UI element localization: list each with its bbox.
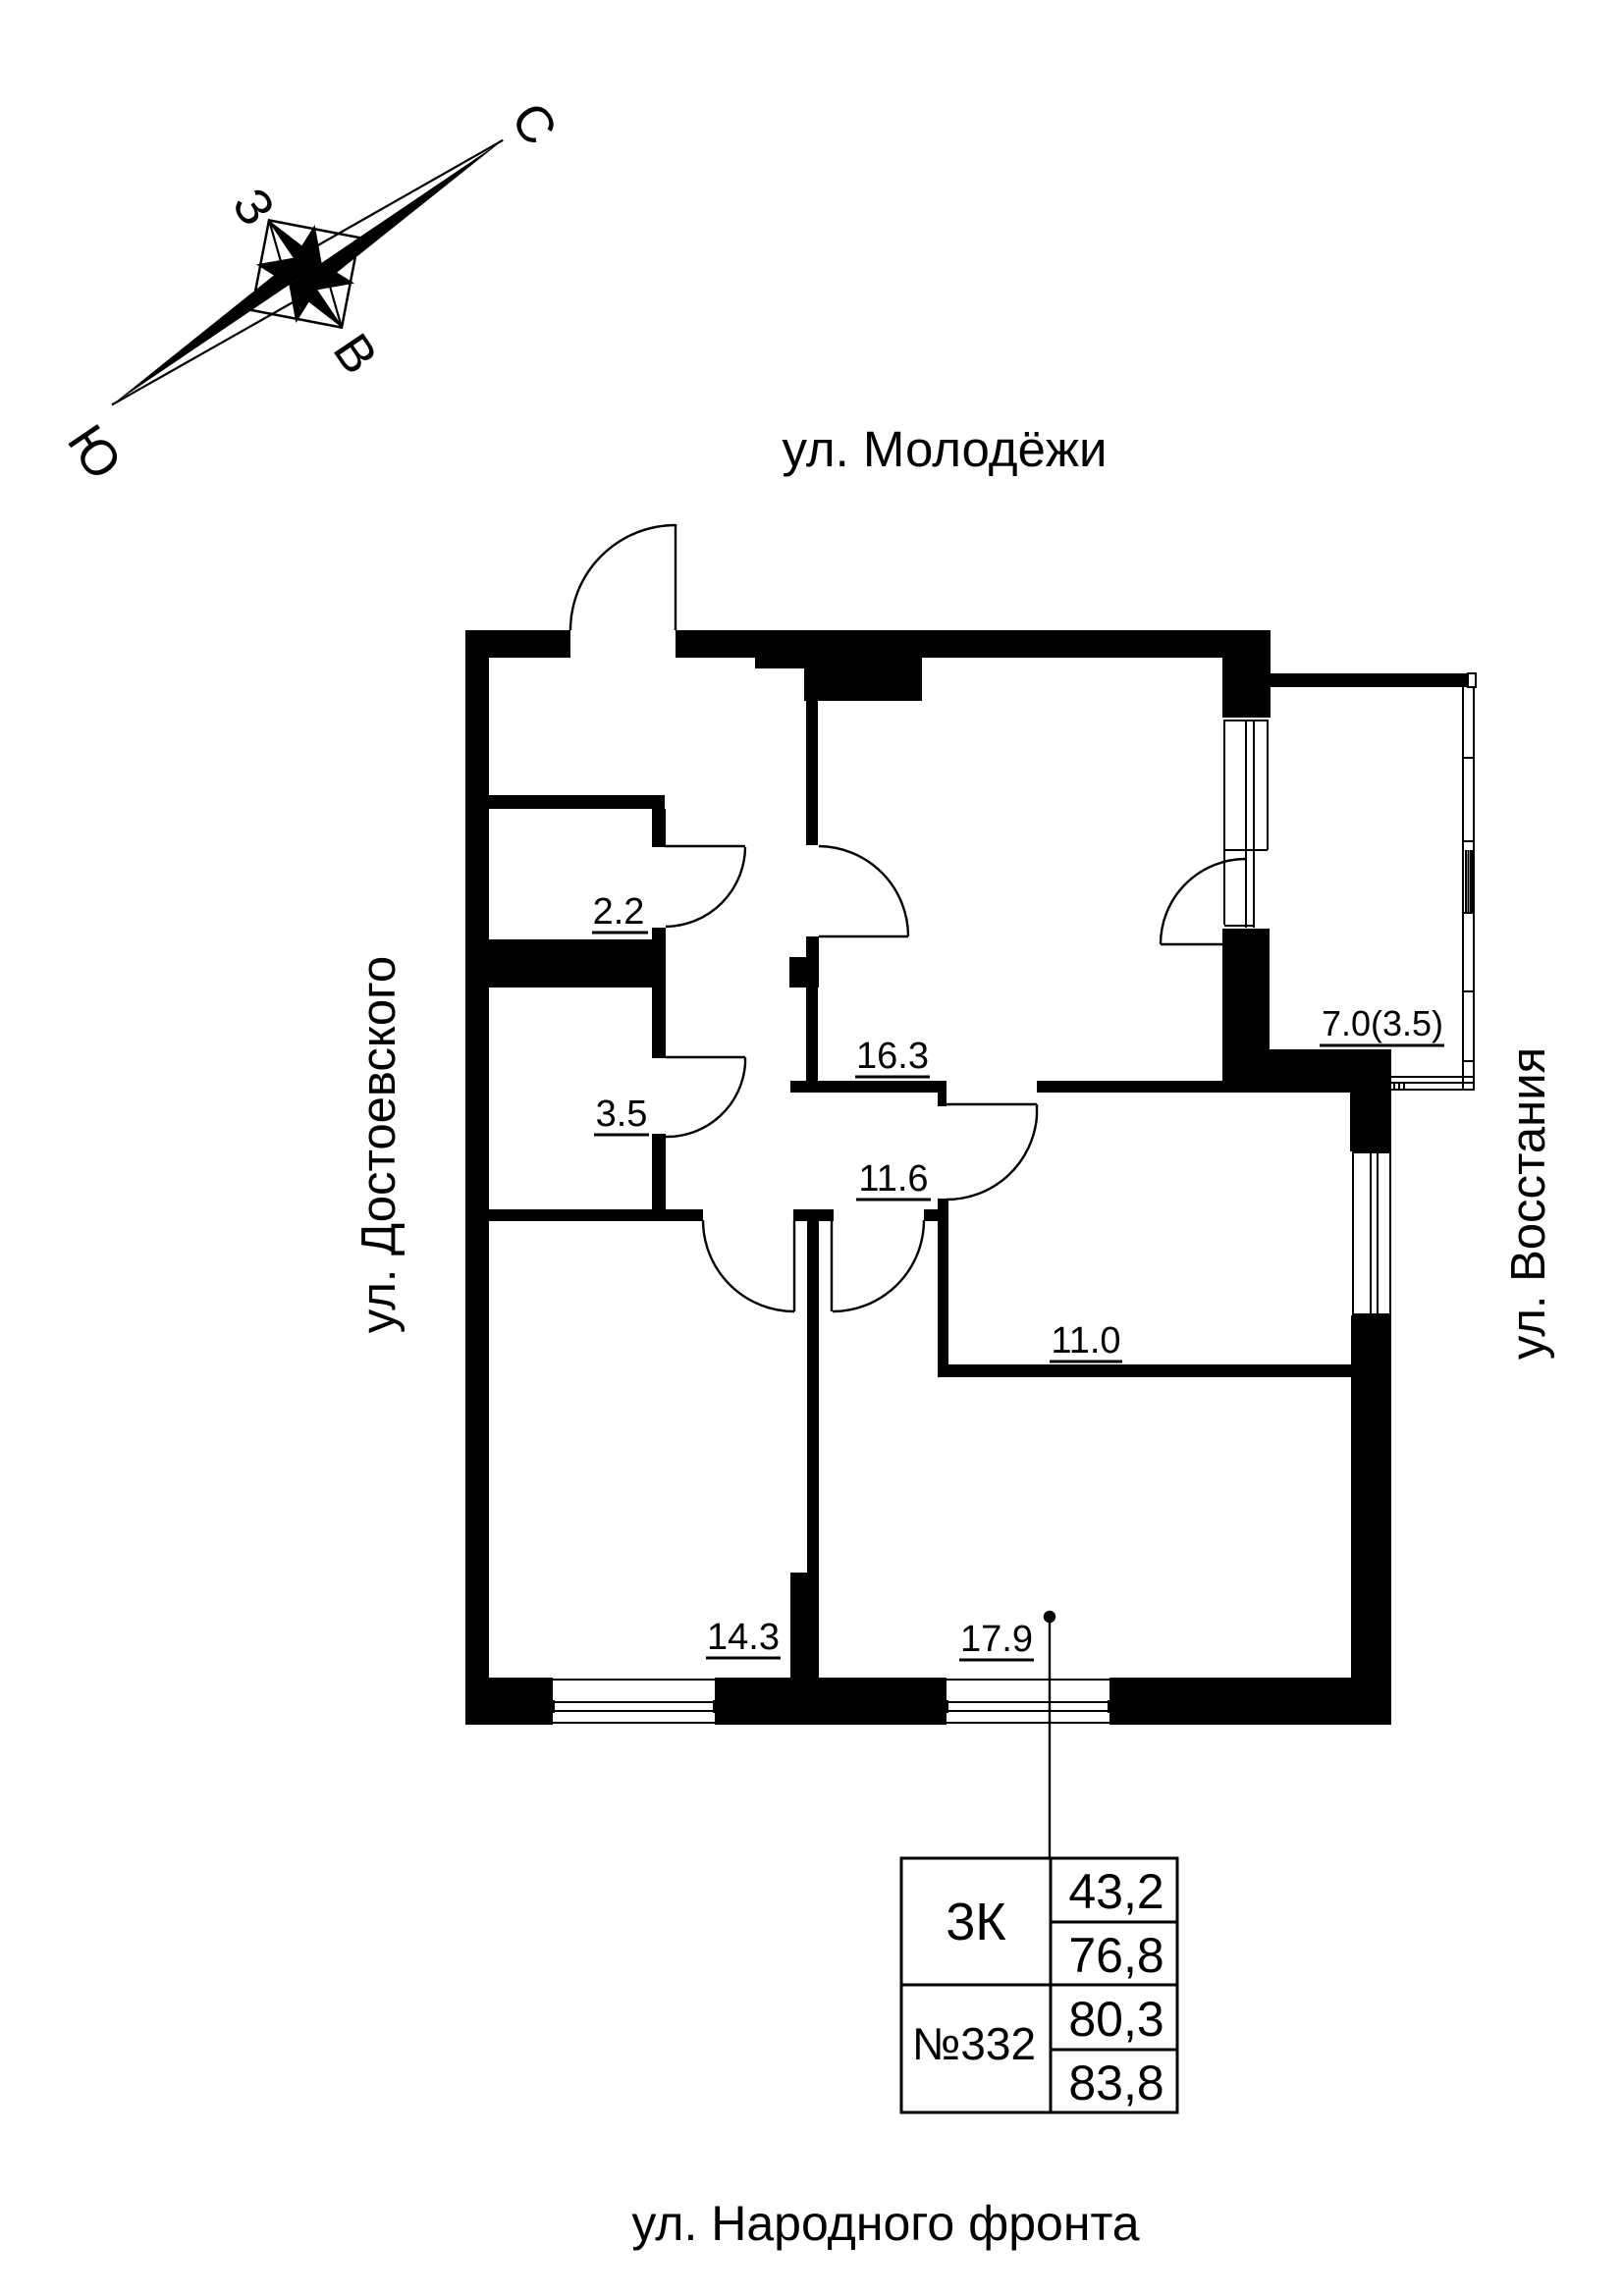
svg-text:80,3: 80,3 <box>1068 1992 1163 2047</box>
svg-text:83,8: 83,8 <box>1068 2056 1163 2110</box>
svg-text:ул. Восстания: ул. Восстания <box>1502 1047 1555 1360</box>
svg-text:14.3: 14.3 <box>707 1617 780 1658</box>
svg-text:ул. Достоевского: ул. Достоевского <box>352 956 406 1333</box>
svg-text:ул. Молодёжи: ул. Молодёжи <box>782 421 1107 477</box>
svg-text:2.2: 2.2 <box>593 891 645 933</box>
svg-text:3.5: 3.5 <box>596 1094 648 1135</box>
svg-text:11.6: 11.6 <box>858 1158 928 1200</box>
svg-text:№332: №332 <box>912 2018 1036 2069</box>
svg-text:11.0: 11.0 <box>1051 1320 1120 1362</box>
svg-text:ул. Народного фронта: ул. Народного фронта <box>631 2196 1139 2251</box>
svg-text:16.3: 16.3 <box>856 1036 929 1077</box>
svg-text:17.9: 17.9 <box>960 1619 1033 1660</box>
svg-text:43,2: 43,2 <box>1068 1864 1163 1919</box>
svg-text:3К: 3К <box>946 1893 1006 1951</box>
svg-text:76,8: 76,8 <box>1068 1928 1163 1983</box>
svg-text:7.0(3.5): 7.0(3.5) <box>1322 1003 1443 1043</box>
